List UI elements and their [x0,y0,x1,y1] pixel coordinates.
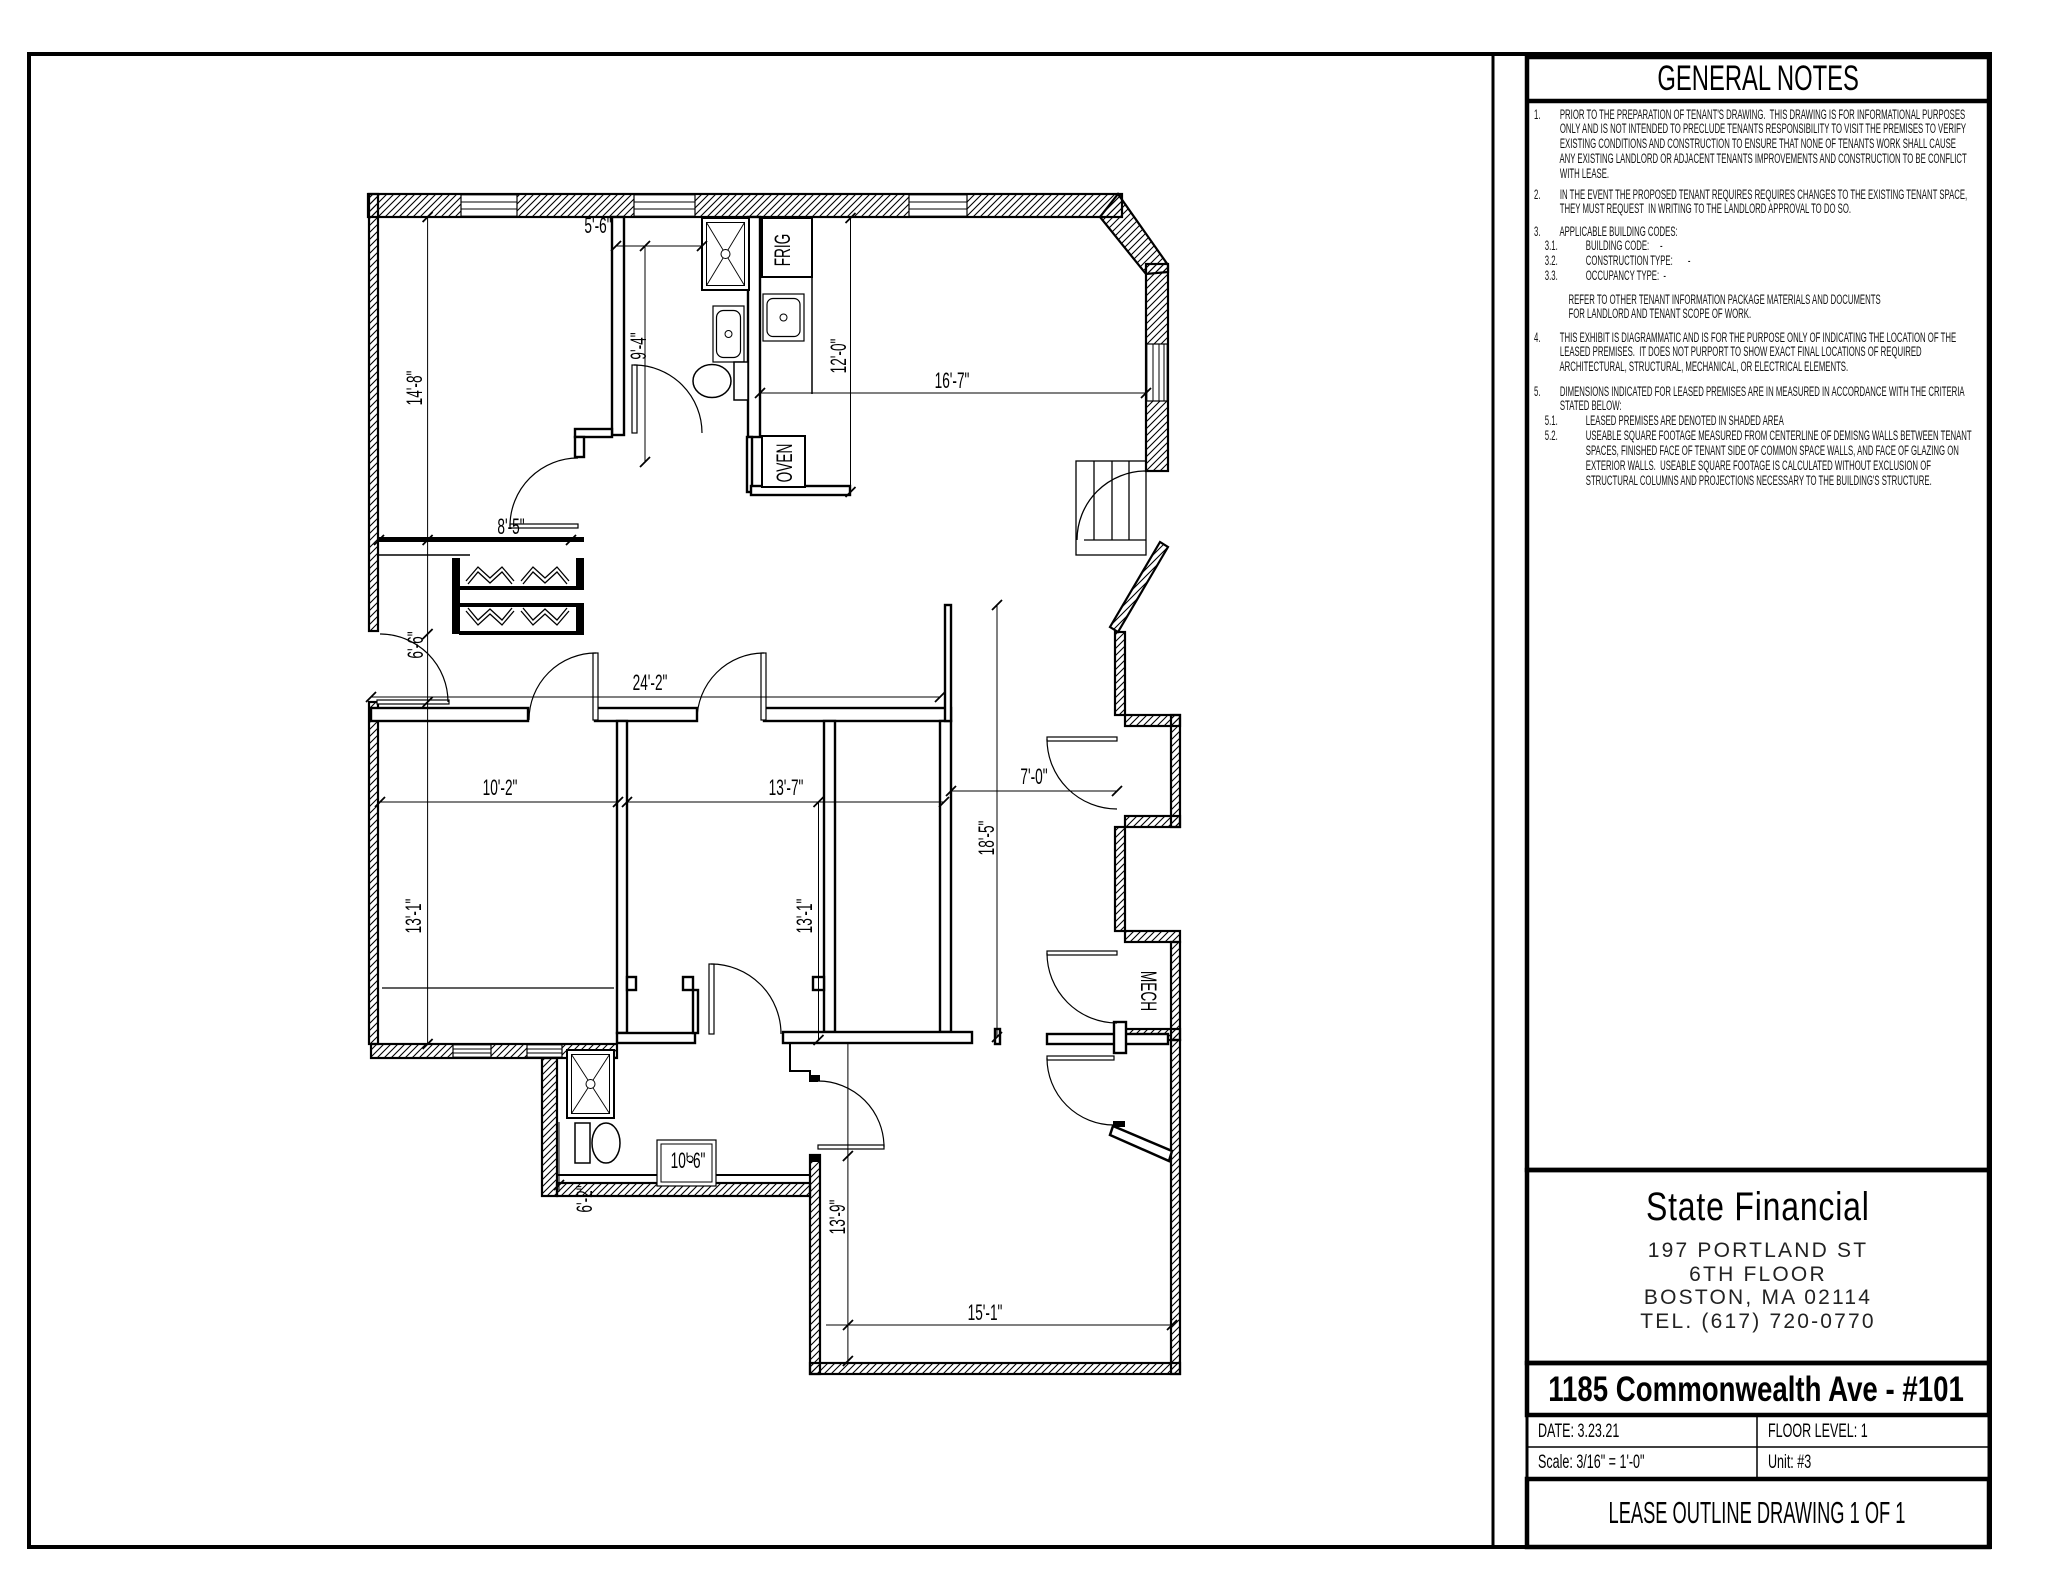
svg-text:LEASE OUTLINE DRAWING 1 OF 1: LEASE OUTLINE DRAWING 1 OF 1 [1609,1496,1906,1530]
svg-text:5'-6": 5'-6" [584,213,611,238]
svg-text:10'-6": 10'-6" [671,1148,706,1173]
svg-text:6'-6": 6'-6" [403,631,428,658]
svg-text:14'-8": 14'-8" [402,371,427,406]
svg-text:OVEN: OVEN [772,444,797,483]
svg-text:15'-1": 15'-1" [968,1300,1003,1325]
svg-text:13'-9": 13'-9" [825,1200,850,1235]
svg-text:13'-7": 13'-7" [769,775,804,800]
svg-text:9'-4": 9'-4" [626,332,651,359]
svg-text:7'-0": 7'-0" [1020,764,1047,789]
svg-text:8'-5": 8'-5" [497,514,524,539]
svg-text:24'-2": 24'-2" [633,670,668,695]
svg-text:1185 Commonwealth Ave - #101: 1185 Commonwealth Ave - #101 [1548,1369,1964,1409]
svg-text:6'-2": 6'-2" [572,1185,597,1212]
svg-text:16'-7": 16'-7" [935,368,970,393]
svg-text:18'-5": 18'-5" [974,821,999,856]
svg-text:13'-1": 13'-1" [792,899,817,934]
svg-text:12'-0": 12'-0" [826,339,851,374]
svg-text:MECH: MECH [1136,971,1161,1011]
svg-text:10'-2": 10'-2" [483,775,518,800]
svg-text:FRIG: FRIG [770,234,795,267]
svg-text:13'-1": 13'-1" [401,899,426,934]
